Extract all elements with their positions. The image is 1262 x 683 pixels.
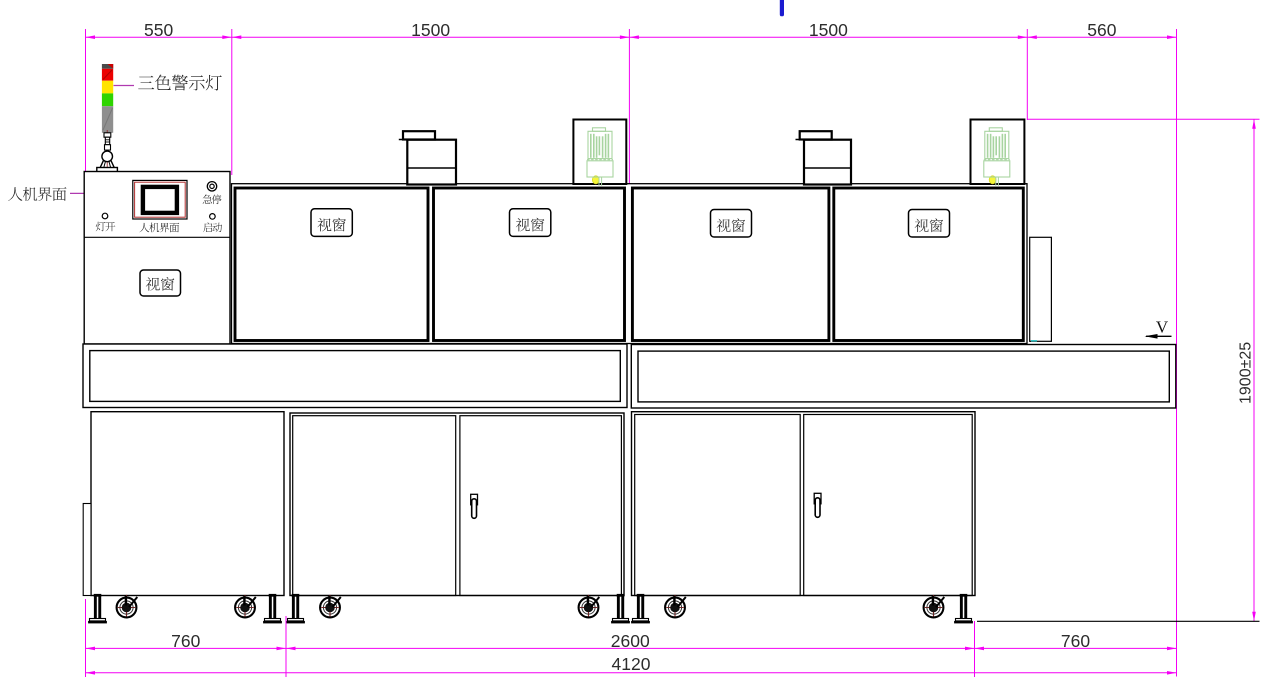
svg-text:V: V: [1156, 318, 1169, 337]
svg-text:550: 550: [144, 20, 173, 40]
svg-text:4120: 4120: [612, 654, 651, 674]
svg-text:1900±25: 1900±25: [1238, 342, 1255, 404]
svg-text:760: 760: [171, 631, 200, 651]
svg-text:1500: 1500: [809, 20, 848, 40]
svg-text:560: 560: [1087, 20, 1116, 40]
svg-text:2600: 2600: [611, 631, 650, 651]
svg-text:1500: 1500: [411, 20, 450, 40]
svg-text:760: 760: [1061, 631, 1090, 651]
